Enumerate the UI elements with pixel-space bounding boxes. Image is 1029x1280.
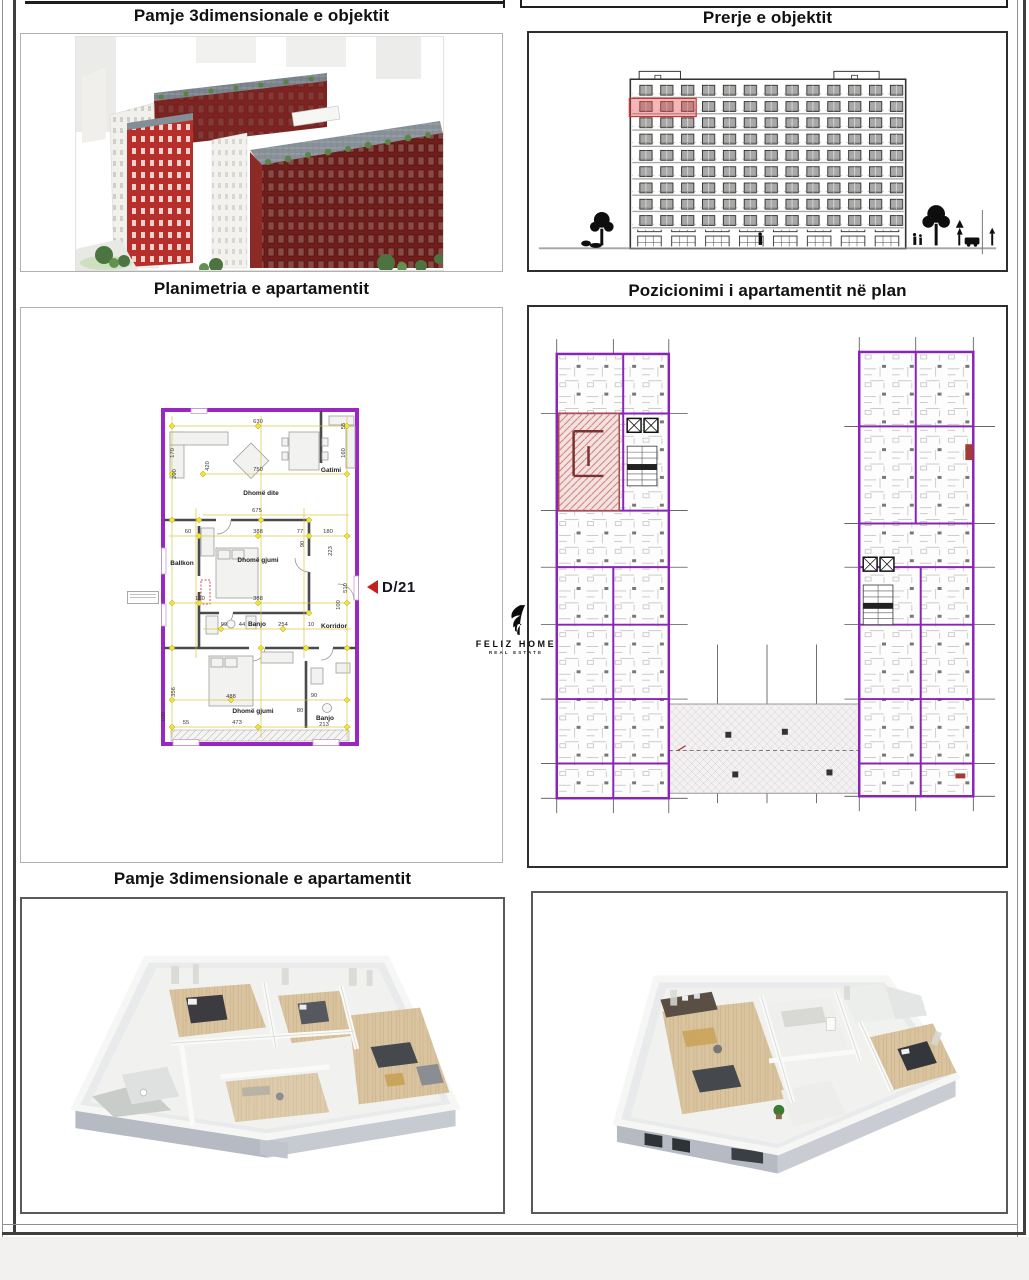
unit-label: D/21 [382, 579, 416, 596]
dimension-label: 420 [206, 461, 212, 471]
dimension-label: 750 [253, 468, 263, 474]
dimension-label: 80 [297, 709, 303, 715]
title-section: Prerje e objektit [527, 8, 1008, 28]
building-3d-render [75, 36, 444, 271]
apartment-floorplan-drawing: Dhomë diteGatimiBallkonDhomë gjumiBanjoK… [161, 408, 359, 746]
dimension-label: 254 [278, 623, 288, 629]
dimension-label: 100 [162, 712, 168, 722]
dimension-label: 510 [344, 583, 350, 593]
unit-pointer-icon [367, 580, 378, 594]
room-label: Dhomë gjumi [232, 709, 273, 716]
dimension-label: 630 [253, 420, 263, 426]
room-label: Ballkon [170, 561, 193, 568]
dimension-label: 90 [301, 541, 307, 547]
dimension-label: 10 [308, 623, 314, 629]
outer-frame-left [2, 0, 3, 1237]
dimension-label: 55 [183, 721, 189, 727]
title-floorplan: Planimetria e apartamentit [20, 279, 503, 299]
dimension-label: 44 [239, 623, 245, 629]
panel-floorplan: Dhomë diteGatimiBallkonDhomë gjumiBanjoK… [20, 307, 503, 863]
unit-tag: D/21 [367, 576, 437, 598]
dimension-label: 90 [311, 694, 317, 700]
room-label: Korridor [321, 624, 347, 631]
dimension-label: 170 [171, 448, 177, 458]
inner-frame-bottom [2, 1232, 1026, 1235]
top-remnant-left [25, 1, 505, 4]
title-position: Pozicionimi i apartamentit në plan [527, 281, 1008, 301]
panel-3d-building [20, 33, 503, 272]
top-remnant-right-tick2 [1006, 0, 1008, 8]
inner-frame-right [1023, 0, 1026, 1233]
plan-annotation-box [127, 591, 159, 604]
panel-3d-apartment-right [531, 891, 1008, 1214]
dimension-label: 200 [173, 469, 179, 479]
page-bottom-margin [0, 1237, 1029, 1280]
dimension-label: 77 [297, 530, 303, 536]
room-label: Banjo [248, 622, 266, 629]
title-3d-building: Pamje 3dimensionale e objektit [20, 6, 503, 26]
panel-position [527, 305, 1008, 868]
dimension-label: 388 [253, 597, 263, 603]
floor-position-plan [529, 307, 1006, 866]
apartment-3d-render-left [22, 899, 503, 1212]
dimension-label: 99 [221, 623, 227, 629]
flame-icon [501, 604, 531, 638]
building-3d-render-graphic [76, 37, 443, 270]
panel-3d-apartment-left [20, 897, 505, 1214]
room-label: Dhomë gjumi [237, 558, 278, 565]
inner-frame-left [13, 0, 16, 1233]
outer-frame-right [1017, 0, 1018, 1237]
room-label: Gatimi [321, 468, 341, 475]
dimension-label: 100 [337, 600, 343, 610]
dimension-label: 388 [253, 530, 263, 536]
building-section-drawing [529, 33, 1006, 270]
dimension-label: 180 [323, 530, 333, 536]
dimension-label: 160 [342, 448, 348, 458]
logo-subtitle: REAL ESTATE [466, 650, 566, 655]
apartment-3d-render-right [533, 893, 1006, 1212]
panel-section [527, 31, 1008, 272]
dimension-label: 60 [185, 530, 191, 536]
room-label: Dhomë dite [243, 491, 278, 498]
dimension-label: 130 [195, 597, 205, 603]
floorplan-labels: Dhomë diteGatimiBallkonDhomë gjumiBanjoK… [161, 408, 359, 746]
dimension-label: 55 [342, 423, 348, 429]
top-remnant-left-tick [503, 0, 505, 8]
dimension-label: 473 [232, 721, 242, 727]
top-remnant-right-tick [520, 0, 522, 8]
dimension-label: 223 [329, 546, 335, 556]
title-3d-apartment: Pamje 3dimensionale e apartamentit [20, 869, 505, 889]
dimension-label: 356 [172, 687, 178, 697]
logo-name: FELIZ HOME [466, 639, 566, 649]
dimension-label: 675 [252, 509, 262, 515]
dimension-label: 488 [226, 695, 236, 701]
outer-frame-bottom [2, 1224, 1018, 1225]
dimension-label: 213 [319, 723, 329, 729]
listing-sheet: Pamje 3dimensionale e objektit Prerje e … [0, 0, 1029, 1280]
feliz-home-logo: FELIZ HOME REAL ESTATE [466, 604, 566, 672]
